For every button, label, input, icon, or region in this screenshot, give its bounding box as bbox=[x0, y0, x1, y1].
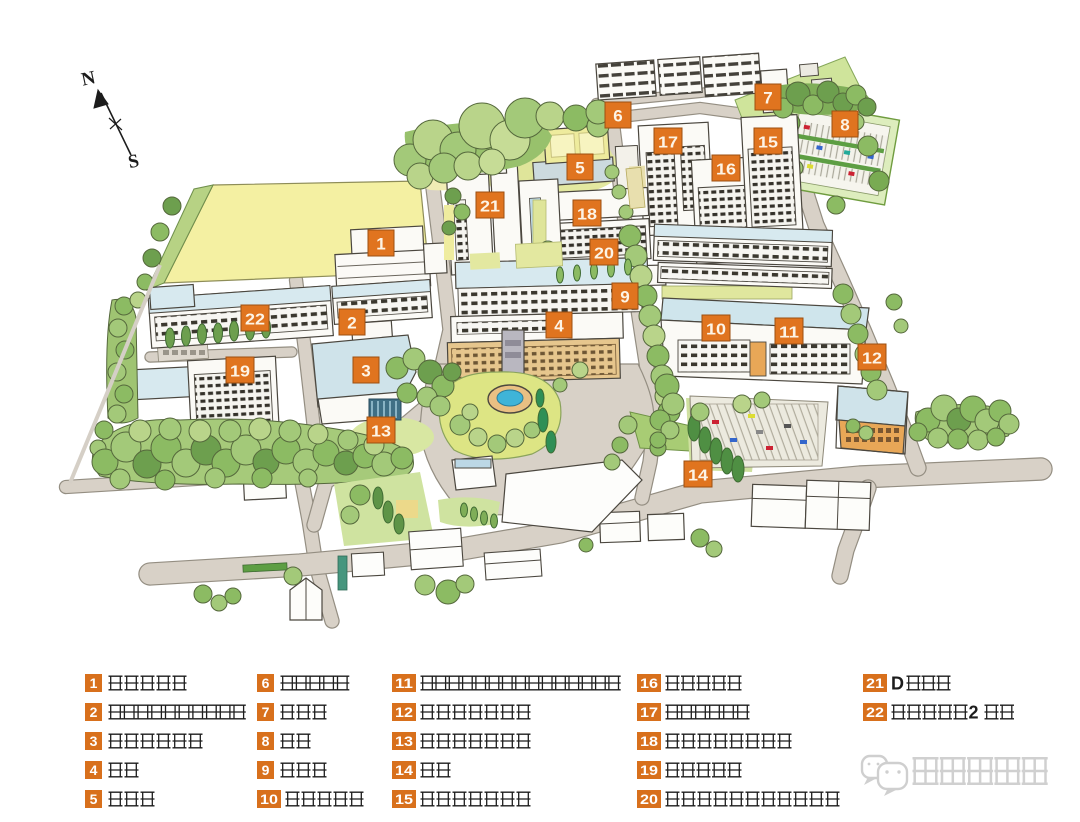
svg-text:20: 20 bbox=[640, 791, 658, 807]
svg-text:13: 13 bbox=[395, 733, 413, 749]
svg-text:21: 21 bbox=[480, 199, 500, 216]
svg-text:16: 16 bbox=[640, 675, 658, 691]
svg-text:11: 11 bbox=[395, 675, 413, 691]
svg-text:18: 18 bbox=[640, 733, 658, 749]
svg-text:22: 22 bbox=[245, 312, 265, 329]
svg-text:1: 1 bbox=[90, 675, 98, 691]
svg-text:14: 14 bbox=[688, 468, 708, 485]
svg-text:15: 15 bbox=[395, 791, 413, 807]
svg-text:14: 14 bbox=[395, 762, 413, 778]
svg-text:21: 21 bbox=[866, 675, 884, 691]
svg-text:2: 2 bbox=[969, 703, 979, 723]
svg-text:20: 20 bbox=[594, 246, 614, 263]
svg-text:19: 19 bbox=[230, 364, 250, 381]
svg-text:1: 1 bbox=[376, 235, 385, 254]
svg-text:6: 6 bbox=[613, 107, 622, 126]
svg-text:12: 12 bbox=[862, 351, 882, 368]
svg-text:9: 9 bbox=[620, 288, 629, 307]
svg-text:19: 19 bbox=[640, 762, 658, 778]
svg-text:13: 13 bbox=[371, 424, 391, 441]
svg-text:5: 5 bbox=[90, 791, 98, 807]
svg-text:18: 18 bbox=[577, 207, 597, 224]
svg-text:17: 17 bbox=[658, 135, 678, 152]
svg-text:2: 2 bbox=[90, 704, 98, 720]
svg-text:D: D bbox=[891, 674, 904, 694]
svg-text:5: 5 bbox=[575, 159, 584, 178]
svg-text:7: 7 bbox=[262, 704, 270, 720]
svg-text:4: 4 bbox=[90, 762, 98, 778]
svg-text:6: 6 bbox=[262, 675, 270, 691]
svg-text:17: 17 bbox=[640, 704, 658, 720]
svg-text:11: 11 bbox=[779, 325, 799, 342]
svg-text:3: 3 bbox=[361, 362, 370, 381]
svg-text:15: 15 bbox=[758, 135, 778, 152]
svg-text:16: 16 bbox=[716, 162, 736, 179]
svg-text:12: 12 bbox=[395, 704, 413, 720]
svg-text:2: 2 bbox=[347, 314, 356, 333]
svg-text:10: 10 bbox=[706, 322, 726, 339]
svg-text:22: 22 bbox=[866, 704, 884, 720]
svg-text:8: 8 bbox=[840, 116, 849, 135]
svg-text:8: 8 bbox=[262, 733, 270, 749]
svg-text:9: 9 bbox=[262, 762, 270, 778]
svg-text:4: 4 bbox=[554, 317, 564, 336]
svg-text:7: 7 bbox=[763, 89, 772, 108]
svg-text:3: 3 bbox=[90, 733, 98, 749]
svg-text:10: 10 bbox=[260, 791, 278, 807]
